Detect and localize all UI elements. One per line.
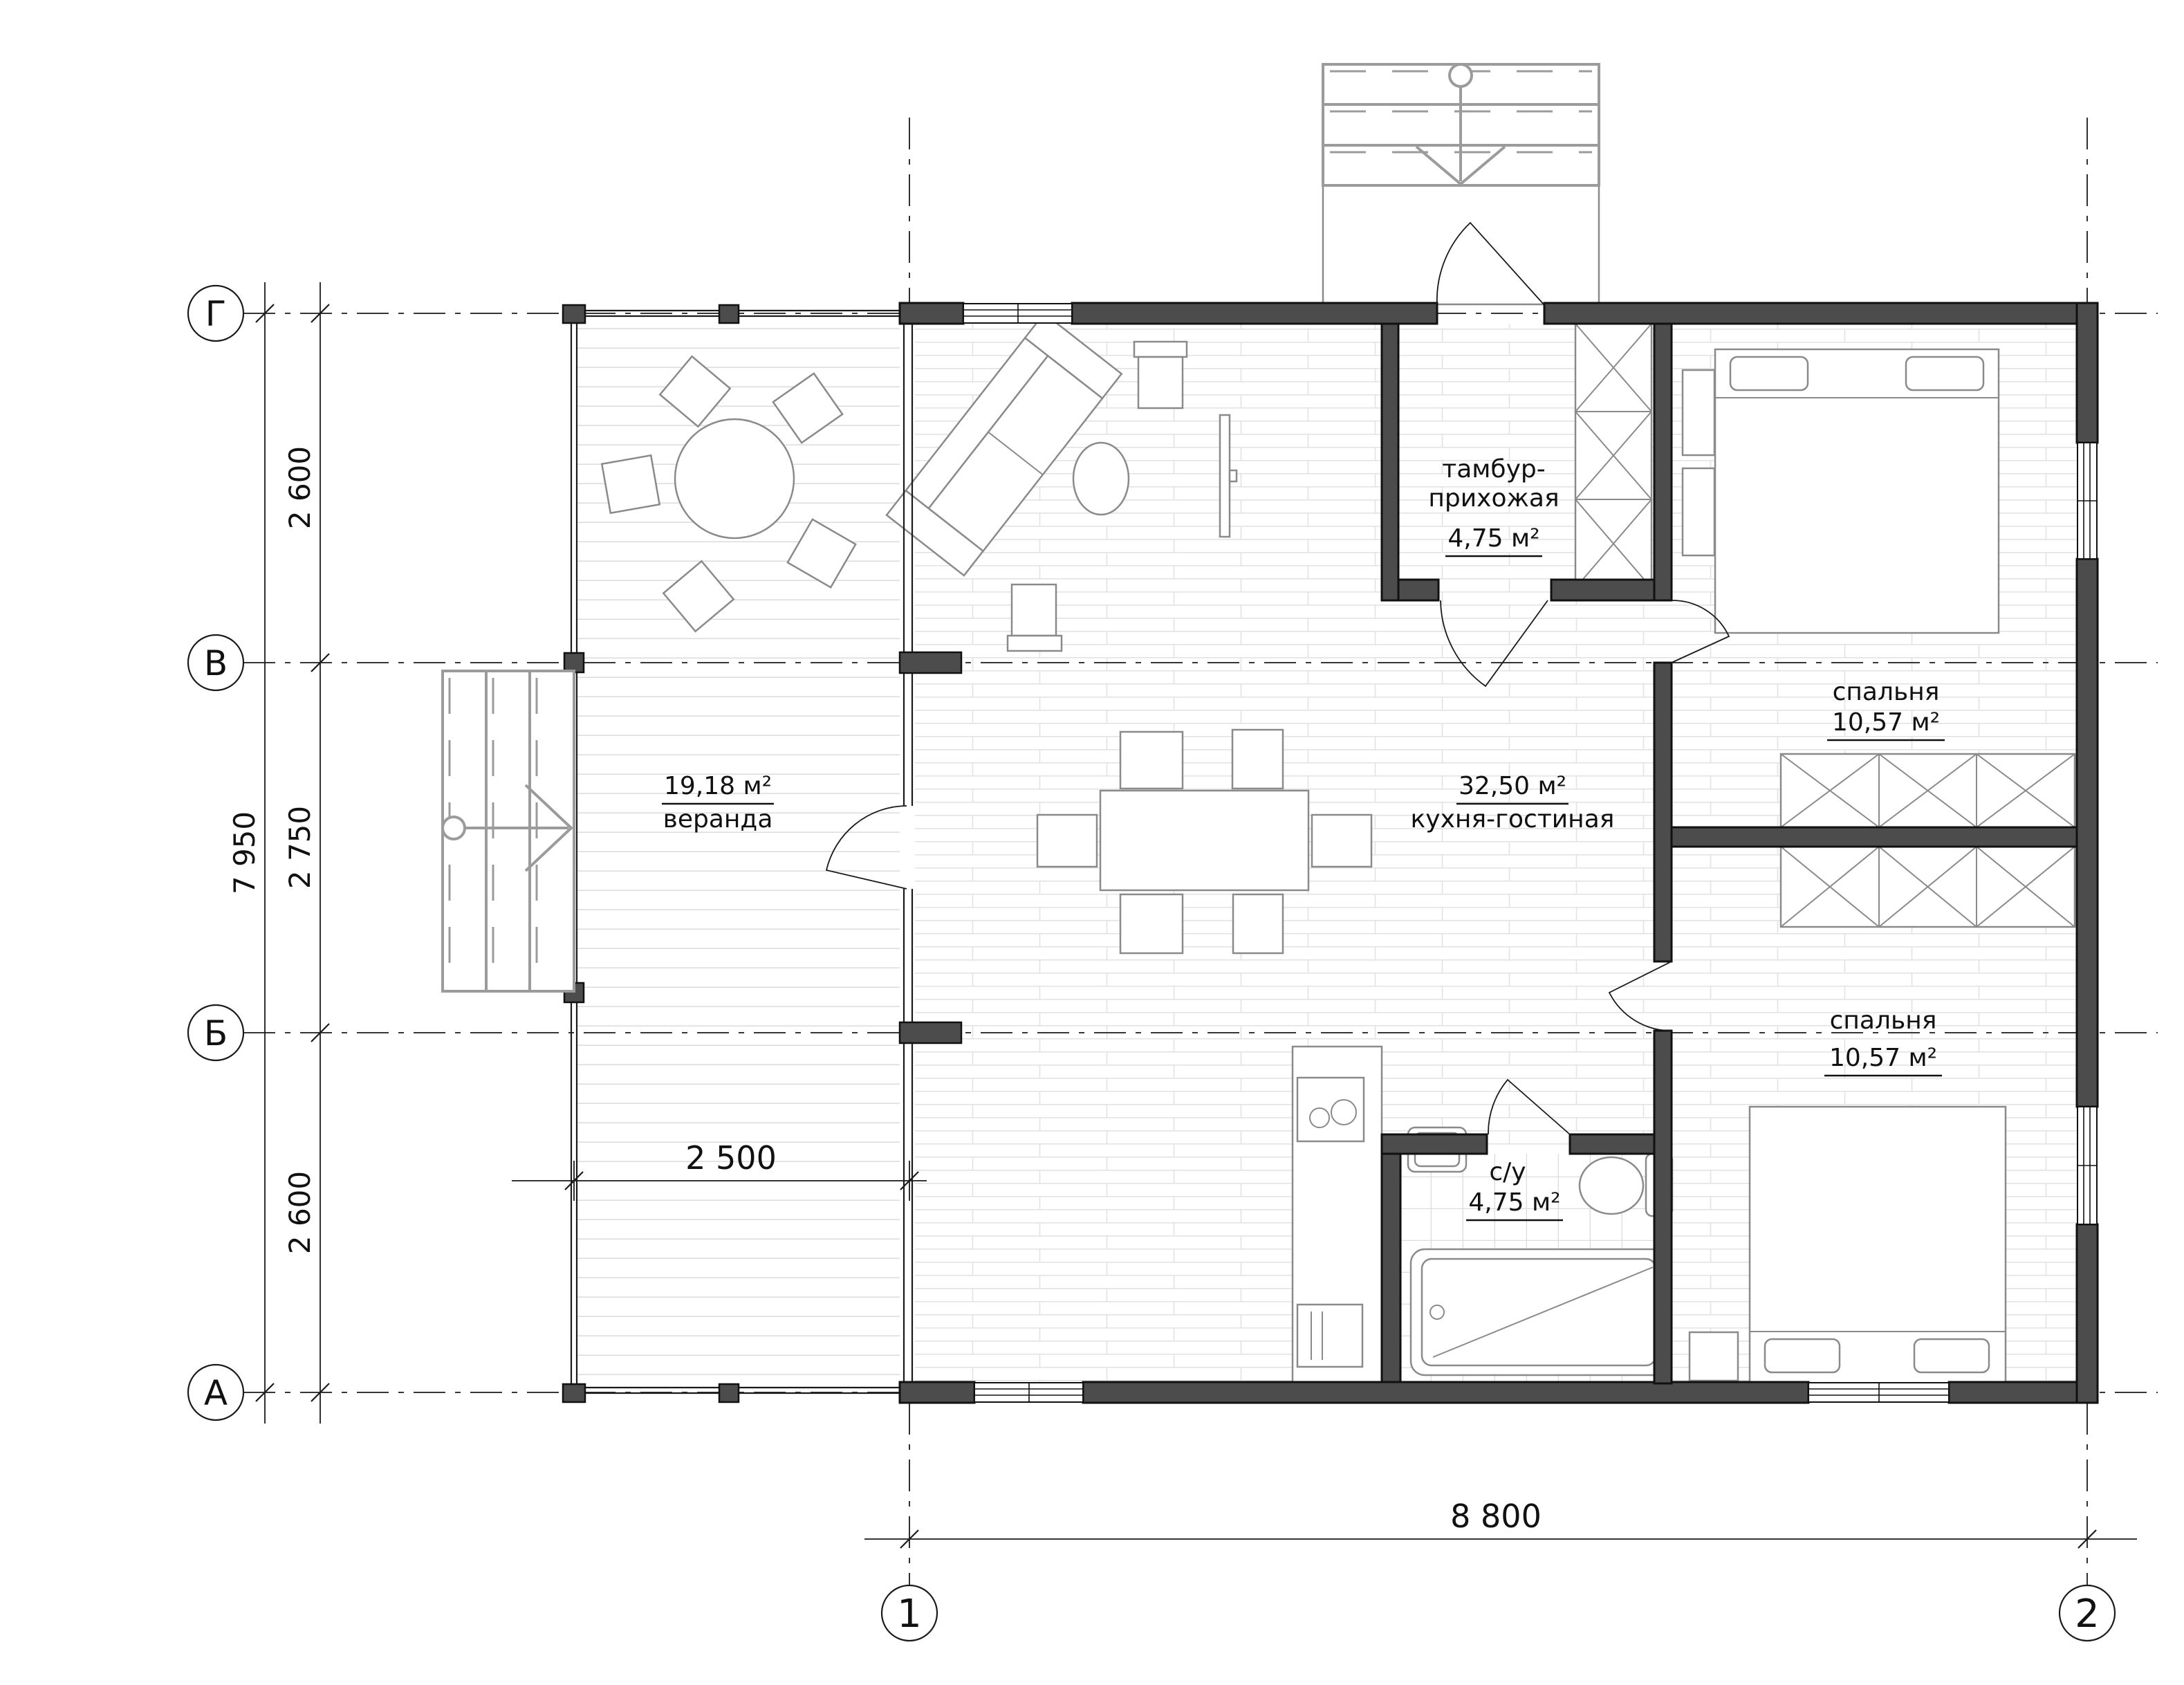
dim-bottom-total: 8 800 [1450,1498,1542,1535]
bathroom-name: с/у [1489,1158,1526,1186]
armchair [1008,584,1062,651]
wall-right [2077,303,2098,443]
window-top-living [963,304,1072,323]
glazed-wall-west [904,324,912,1382]
partition-bedrooms [1654,663,1672,961]
tambour-wall-south [1551,580,1654,600]
axis-label-v: В [204,643,228,683]
wall-top [900,303,963,324]
bathtub [1411,1249,1667,1375]
side-table [1073,443,1129,515]
wall-bottom [1083,1382,1808,1403]
wall-right [2077,1224,2098,1403]
entry-path-start [1450,64,1472,86]
axis-label-b: Б [204,1013,228,1053]
wall-bottom [900,1382,974,1403]
veranda-post-nw [563,305,585,323]
bedroom-bottom-name: спальня [1830,1006,1937,1035]
tambour-name-line2: прихожая [1428,484,1559,513]
dining-chair [1232,730,1283,789]
dim-left-seg-2: 2 750 [283,806,317,889]
bathroom-wall-west [1382,1154,1400,1382]
dining-chair [1120,732,1183,789]
bathroom-wall-north [1570,1134,1654,1154]
wall-top [1544,303,2098,324]
window-bottom-kitchen [974,1383,1083,1402]
veranda-name: веранда [663,805,773,834]
bathroom-area: 4,75 м² [1468,1188,1560,1217]
partition-bedrooms [1654,324,1672,600]
pillow [1906,357,1983,390]
dining-chair [1233,894,1283,953]
veranda-area: 19,18 м² [664,772,772,800]
veranda-stairs [443,671,574,991]
nightstand [1683,468,1714,555]
axis-label-1: 1 [897,1592,922,1637]
wall-bottom [1949,1382,2098,1403]
bathroom-wall-north [1382,1134,1487,1154]
bedroom-top-area: 10,57 м² [1832,708,1940,737]
axis-label-g: Г [205,294,227,334]
veranda-post-s [719,1384,739,1402]
veranda-post-n [719,305,739,323]
nightstand [1683,370,1714,455]
porch-landing [1323,185,1599,304]
veranda-post-stair-top [564,653,584,672]
bedroom-bottom-area: 10,57 м² [1829,1044,1937,1072]
kitchen-living-area: 32,50 м² [1459,772,1566,800]
pillow [1765,1339,1840,1372]
tambour-wardrobe [1575,324,1651,588]
entry-porch [1323,64,1599,304]
kitchen-living-name: кухня-гостиная [1411,805,1615,834]
partition-bedrooms [1654,1031,1672,1383]
wall-between-bedrooms [1672,827,2077,847]
bedroom-top-name: спальня [1833,678,1940,706]
wardrobe [1781,754,2075,827]
wall-stub-v [900,652,961,673]
tambour-area: 4,75 м² [1447,524,1539,553]
pillow [1914,1339,1989,1372]
pillow [1730,357,1808,390]
tambour-wall-west [1382,324,1398,600]
axis-label-a: А [204,1373,228,1413]
dim-left-seg-3: 2 600 [283,1171,317,1254]
kitchen-counter [1293,1047,1382,1382]
floor-plan-page: 2 600 2 750 2 600 7 950 2 500 8 800 Г В … [0,0,2184,1685]
wall-stub-b [900,1022,961,1043]
bed [1715,349,1999,633]
bed [1750,1107,2006,1383]
axis-label-2: 2 [2075,1592,2100,1637]
dining-chair [1120,894,1183,953]
wall-top [1072,303,1437,324]
nightstand [1690,1332,1738,1381]
window-bottom-bedroom [1808,1383,1949,1402]
sink-unit [1297,1078,1364,1141]
wall-right [2077,559,2098,1107]
veranda-post-sw [563,1384,585,1402]
wardrobe [1781,847,2075,927]
tambour-wall-south [1398,580,1438,600]
dining-table [1100,791,1308,890]
dining-chair [1037,815,1097,867]
dim-veranda-width: 2 500 [685,1139,777,1177]
window-right-bedroom-bottom [2077,1107,2097,1224]
floor-plan-drawing: 2 600 2 750 2 600 7 950 2 500 8 800 Г В … [0,0,2184,1685]
veranda-chair [602,455,659,513]
dim-left-total: 7 950 [228,811,261,894]
dim-left-seg-1: 2 600 [283,446,317,529]
tambour-name-line1: тамбур- [1442,455,1546,484]
stairs-path-start [443,817,465,839]
window-right-bedroom-top [2077,443,2097,559]
round-table [675,419,794,538]
dining-chair [1312,815,1371,867]
appliance [1297,1305,1362,1367]
armchair [1134,342,1187,408]
